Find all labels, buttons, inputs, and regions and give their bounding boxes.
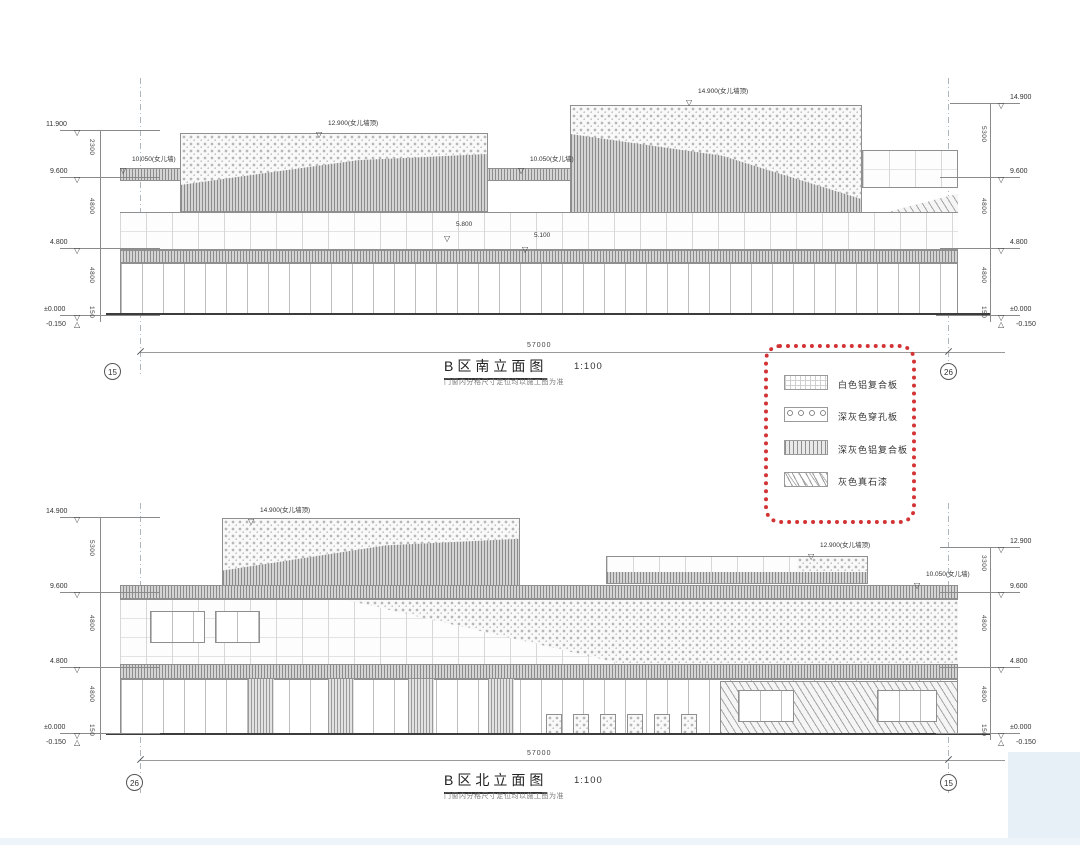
parapet-annotation: 10.050(女儿墙)	[530, 153, 574, 163]
south-drawing-scale: 1:100	[574, 361, 603, 372]
north-second-floor-window	[150, 611, 205, 643]
level-marker-icon	[74, 314, 80, 332]
north-left-tower-perforated-panel	[223, 519, 519, 585]
parapet-annotation: 10.050(女儿墙)	[926, 568, 970, 578]
level-marker-icon	[120, 160, 126, 178]
dimension-text: 5300	[88, 540, 95, 556]
perforated-door-panel	[600, 714, 616, 734]
level-annotation: 5.800	[456, 221, 472, 228]
louver-pier	[328, 679, 354, 734]
level-value: 14.900	[46, 508, 67, 515]
level-value: -0.150	[46, 739, 66, 746]
level-value: 4.800	[1010, 239, 1028, 246]
parapet-annotation: 10.050(女儿墙)	[132, 153, 176, 163]
level-line	[940, 248, 1020, 249]
legend-swatch-dark-aluminum	[784, 440, 828, 455]
level-value: 9.600	[1010, 168, 1028, 175]
level-marker-icon	[74, 509, 80, 527]
level-line	[940, 592, 1020, 593]
south-ground-line	[106, 313, 990, 315]
level-marker-icon	[998, 584, 1004, 602]
level-marker-icon	[914, 575, 920, 593]
parapet-annotation: 12.900(女儿墙顶)	[820, 539, 870, 549]
level-line	[940, 667, 1020, 668]
north-right-roof-louver	[607, 572, 867, 583]
level-marker-icon	[686, 92, 692, 110]
level-marker-icon	[248, 511, 254, 529]
south-right-tower-louver-panel	[570, 105, 862, 215]
legend-label: 深灰色铝复合板	[838, 443, 908, 456]
level-annotation: 5.100	[534, 232, 550, 239]
level-marker-icon	[74, 584, 80, 602]
level-marker-icon	[444, 228, 450, 246]
north-roof-fascia-louver-band	[120, 585, 958, 599]
level-marker-icon	[998, 95, 1004, 113]
level-marker-icon	[998, 314, 1004, 332]
louver-pier	[408, 679, 434, 734]
dimension-chain-line	[100, 130, 101, 322]
perforated-door-panel	[546, 714, 562, 734]
page-margin	[0, 838, 1080, 845]
south-second-floor-panel-band	[120, 212, 958, 250]
dimension-text: 4800	[88, 198, 95, 214]
level-value: -0.150	[46, 321, 66, 328]
louver-pier	[248, 679, 274, 734]
material-legend: 白色铝复合板 深灰色穿孔板 深灰色铝复合板 灰色真石漆	[764, 344, 916, 524]
level-value: 14.900	[1010, 94, 1031, 101]
level-marker-icon	[998, 659, 1004, 677]
south-left-tower-perforated-panel	[181, 134, 487, 211]
architectural-drawing-page: { "colors": { "revision_cloud_red": "#d2…	[0, 0, 1080, 845]
level-marker-icon	[998, 539, 1004, 557]
dimension-text: 150	[88, 306, 95, 318]
dimension-text: 5300	[980, 126, 987, 142]
level-marker-icon	[74, 659, 80, 677]
level-value: 11.900	[46, 121, 67, 128]
north-stone-wall-window	[877, 690, 937, 722]
span-dimension-text: 57000	[527, 342, 551, 349]
parapet-annotation: 12.900(女儿墙顶)	[328, 117, 378, 127]
grid-bubble-26: 26	[126, 774, 143, 791]
level-value: 9.600	[50, 583, 68, 590]
dimension-text: 150	[980, 306, 987, 318]
legend-swatch-white-aluminum	[784, 375, 828, 390]
level-line	[950, 103, 1020, 104]
south-drawing-note: 门窗内分格尺寸定位均以施工图为准	[444, 377, 564, 387]
north-second-floor-panel-band	[120, 599, 958, 665]
level-marker-icon	[998, 169, 1004, 187]
level-line	[936, 733, 1020, 734]
parapet-annotation: 14.900(女儿墙顶)	[260, 504, 310, 514]
south-canopy-louver-band	[120, 250, 958, 263]
level-value: -0.150	[1016, 739, 1036, 746]
level-value: 4.800	[50, 239, 68, 246]
level-value: 4.800	[50, 658, 68, 665]
level-marker-icon	[74, 240, 80, 258]
perforated-door-panel	[681, 714, 697, 734]
level-value: ±0.000	[44, 306, 65, 313]
north-left-tower-louver-panel	[222, 518, 520, 586]
level-marker-icon	[518, 160, 524, 178]
drawing-sheet: 11.900 9.600 4.800 ±0.000 -0.150 2300 48…	[0, 0, 1080, 845]
north-ground-line	[106, 733, 990, 735]
level-value: 4.800	[1010, 658, 1028, 665]
perforated-door-panel	[573, 714, 589, 734]
span-dimension-text: 57000	[527, 750, 551, 757]
level-value: -0.150	[1016, 321, 1036, 328]
dimension-chain-line	[990, 103, 991, 322]
dimension-text: 4800	[88, 267, 95, 283]
page-margin	[1008, 752, 1080, 845]
grid-bubble-26: 26	[940, 363, 957, 380]
level-line	[936, 315, 1020, 316]
level-marker-icon	[998, 732, 1004, 750]
louver-pier	[488, 679, 514, 734]
legend-label: 灰色真石漆	[838, 475, 888, 488]
north-stone-wall-window	[738, 690, 794, 722]
north-drawing-scale: 1:100	[574, 775, 603, 786]
grid-bubble-15: 15	[940, 774, 957, 791]
south-ground-floor-glazing	[120, 263, 958, 314]
dimension-text: 150	[88, 724, 95, 736]
dimension-chain-line	[100, 517, 101, 740]
level-value: 9.600	[1010, 583, 1028, 590]
grid-bubble-15: 15	[104, 363, 121, 380]
north-drawing-note: 门窗内分格尺寸定位均以施工图为准	[444, 791, 564, 801]
south-right-panel-grid	[862, 150, 958, 188]
span-dimension-line	[140, 760, 1005, 761]
south-left-tower-louver-panel	[180, 133, 488, 212]
dimension-text: 4800	[88, 686, 95, 702]
legend-label: 白色铝复合板	[838, 378, 898, 391]
north-right-roof-panel	[606, 556, 868, 584]
legend-label: 深灰色穿孔板	[838, 410, 898, 423]
dimension-text: 3300	[980, 555, 987, 571]
dimension-text: 2300	[88, 139, 95, 155]
legend-swatch-perforated	[784, 407, 828, 422]
parapet-annotation: 14.900(女儿墙顶)	[698, 85, 748, 95]
level-marker-icon	[74, 122, 80, 140]
level-marker-icon	[74, 169, 80, 187]
dimension-text: 4800	[980, 267, 987, 283]
level-value: 12.900	[1010, 538, 1031, 545]
dimension-text: 4800	[980, 686, 987, 702]
dimension-text: 150	[980, 724, 987, 736]
level-marker-icon	[316, 124, 322, 142]
dimension-text: 4800	[980, 198, 987, 214]
level-marker-icon	[522, 239, 528, 257]
dimension-chain-line	[990, 547, 991, 740]
legend-swatch-stone-paint	[784, 472, 828, 487]
perforated-door-panel	[627, 714, 643, 734]
level-marker-icon	[808, 546, 814, 564]
north-stone-paint-wall	[720, 681, 958, 734]
level-value: ±0.000	[44, 724, 65, 731]
south-right-tower-perforated-panel	[571, 106, 861, 214]
level-marker-icon	[74, 732, 80, 750]
dimension-text: 4800	[980, 615, 987, 631]
level-value: ±0.000	[1010, 306, 1031, 313]
level-marker-icon	[998, 240, 1004, 258]
level-line	[940, 547, 1020, 548]
dimension-text: 4800	[88, 615, 95, 631]
perforated-door-panel	[654, 714, 670, 734]
level-line	[940, 177, 1020, 178]
north-canopy-louver-band	[120, 664, 958, 679]
north-second-floor-window	[215, 611, 260, 643]
level-value: 9.600	[50, 168, 68, 175]
level-value: ±0.000	[1010, 724, 1031, 731]
